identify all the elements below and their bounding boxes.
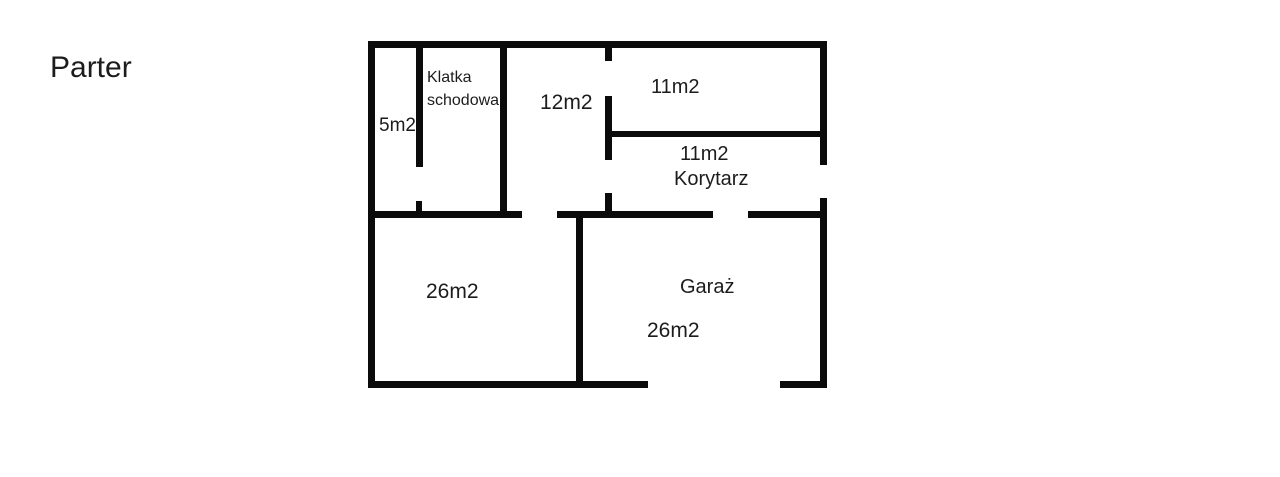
label-room26-area: 26m2 [426,280,479,304]
wall-room12-divider-bottom [605,193,612,218]
wall-middle-right [748,211,827,218]
label-staircase-line2: schodowa [427,89,499,112]
wall-outer-bottom-right [780,381,827,388]
wall-corridor-horizontal [605,131,827,137]
label-room12-area: 12m2 [540,91,593,115]
wall-room12-divider-top [605,41,612,61]
wall-outer-right-lower [820,198,827,388]
label-room11-area: 11m2 [651,76,700,99]
wall-room12-divider-mid [605,96,612,160]
wall-middle-left [368,211,522,218]
label-small-room-area: 5m2 [379,115,416,137]
label-garage-name: Garaż [680,276,734,299]
label-staircase: Klatka schodowa [427,66,499,112]
label-garage-area: 26m2 [647,319,700,343]
wall-staircase-right [500,41,507,218]
wall-outer-bottom-left [368,381,648,388]
label-corridor-name: Korytarz [674,168,748,191]
wall-garage-divider [576,211,583,388]
wall-outer-right-upper [820,41,827,165]
page-title: Parter [50,51,132,85]
floor-plan-page: Parter Klatka schodowa 5m2 12m2 11m2 11m… [0,0,1280,477]
wall-staircase-left [416,41,423,167]
label-corridor-area: 11m2 [680,143,729,166]
wall-outer-top [368,41,827,48]
label-staircase-line1: Klatka [427,66,499,89]
